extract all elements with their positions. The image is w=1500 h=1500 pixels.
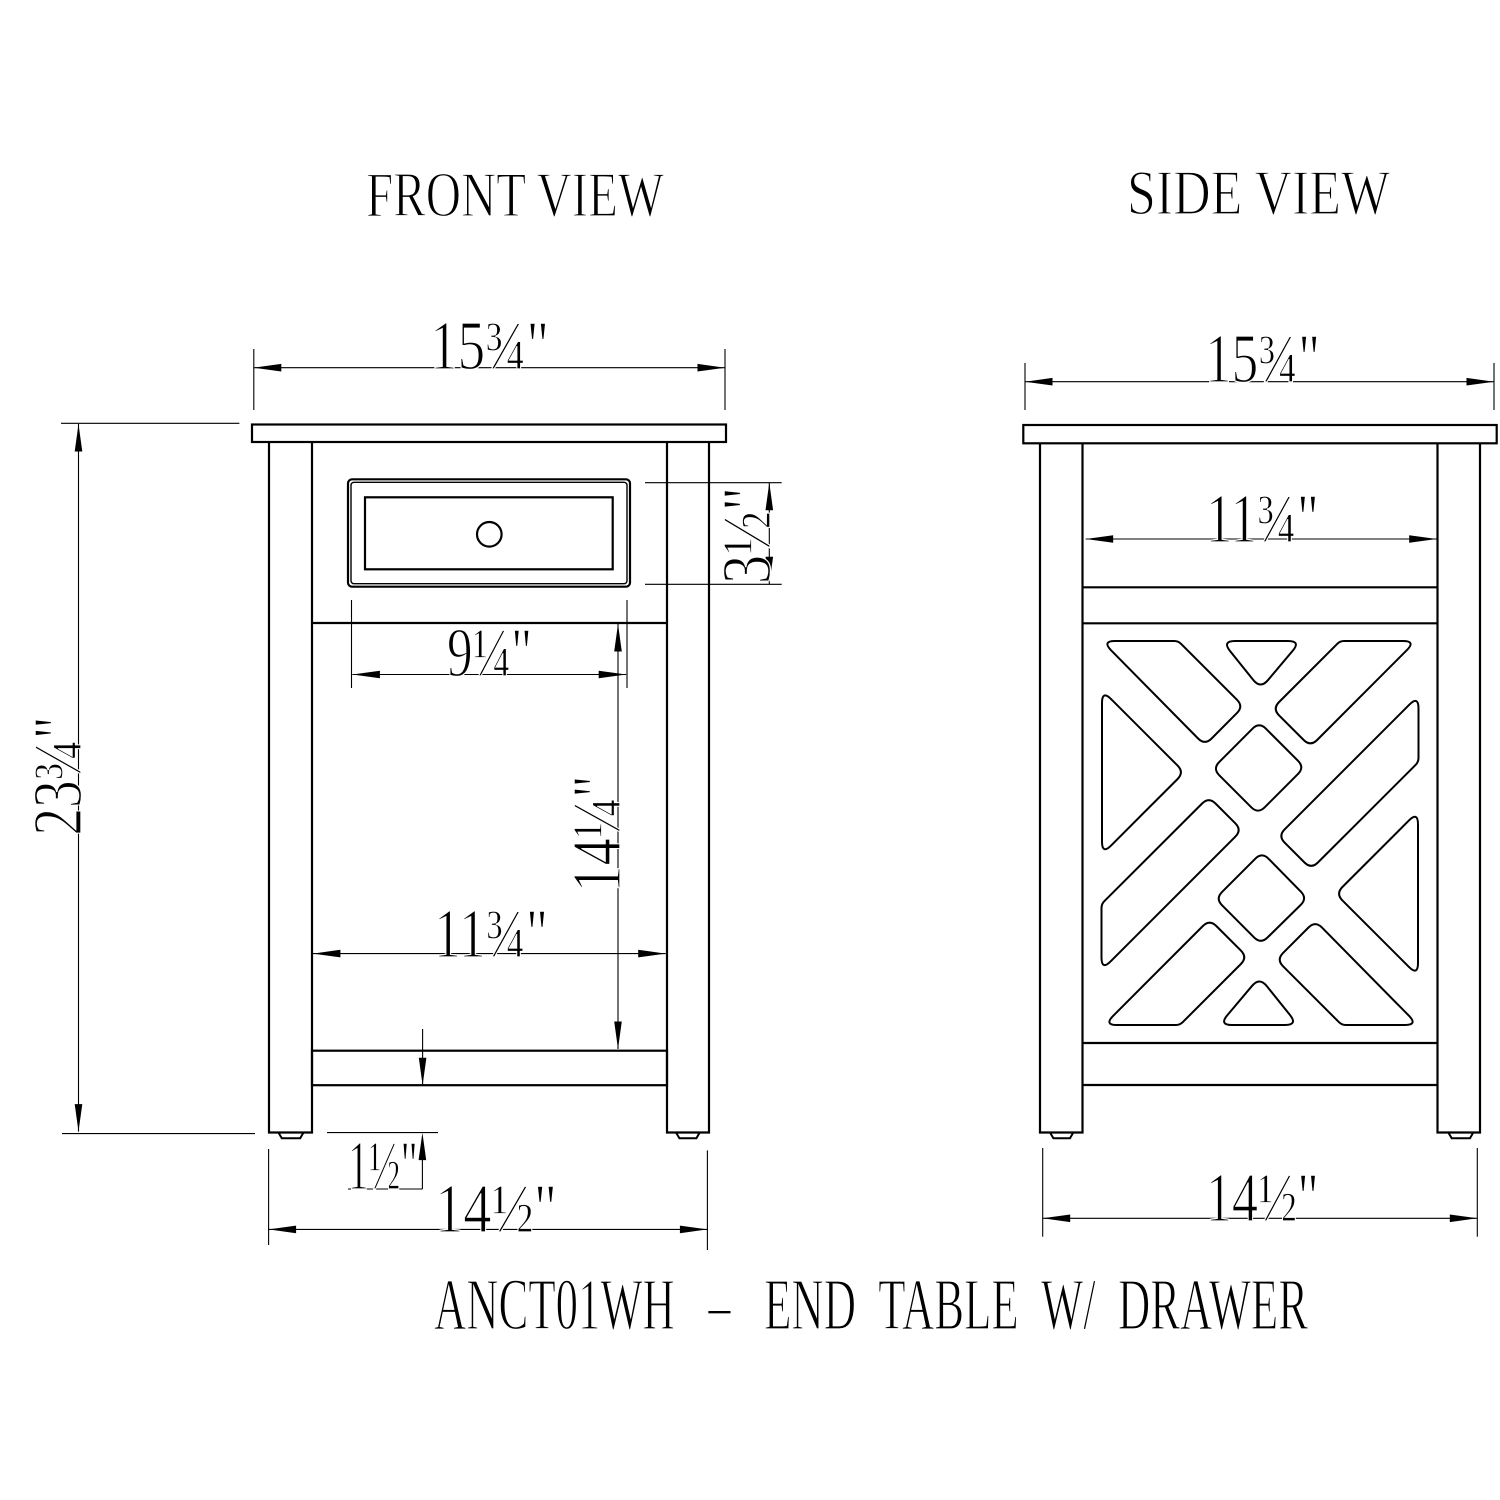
svg-text:1½": 1½" xyxy=(348,1128,418,1205)
svg-text:23¾": 23¾" xyxy=(20,717,97,836)
svg-text:11¾": 11¾" xyxy=(1206,481,1319,558)
svg-text:FRONT VIEW: FRONT VIEW xyxy=(366,159,664,230)
svg-text:15¾": 15¾" xyxy=(1205,321,1320,398)
svg-text:14½": 14½" xyxy=(1206,1160,1319,1237)
svg-text:9¼": 9¼" xyxy=(447,615,532,692)
svg-text:3½": 3½" xyxy=(709,487,786,584)
svg-text:14½": 14½" xyxy=(435,1171,557,1248)
svg-text:SIDE VIEW: SIDE VIEW xyxy=(1127,157,1390,228)
svg-text:ANCT01WH – END TABLE W/: ANCT01WH – END TABLE W/ DRAWER xyxy=(434,1264,1308,1345)
svg-text:15¾": 15¾" xyxy=(430,308,549,385)
svg-text:11¾": 11¾" xyxy=(434,896,548,973)
svg-text:14¼": 14¼" xyxy=(559,776,636,893)
